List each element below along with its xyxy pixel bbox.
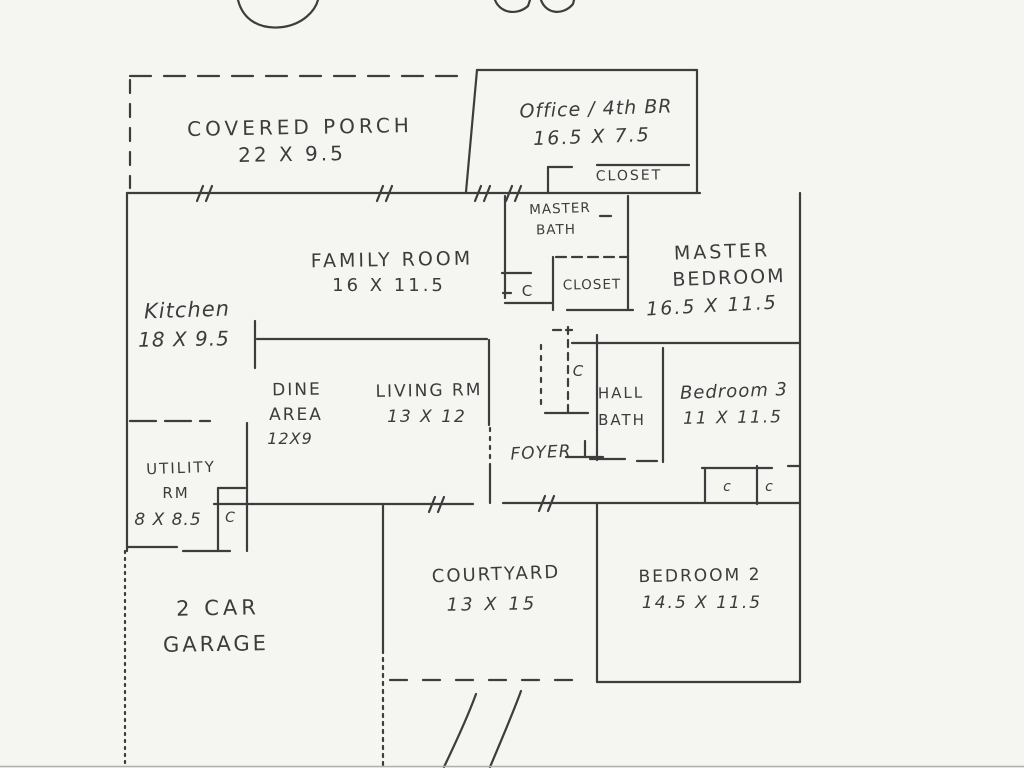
label-family-room-dims: 16 X 11.5 <box>332 277 446 295</box>
label-garage-line2: GARAGE <box>163 633 269 656</box>
label-master-closet: CLOSET <box>563 278 622 293</box>
floor-plan-drawing <box>0 0 1024 768</box>
walkway-right-edge <box>490 691 521 767</box>
label-hall-bath-line1: HALL <box>598 386 645 402</box>
label-dine-dims: 12X9 <box>267 431 313 447</box>
label-dine-line1: DINE <box>272 382 322 400</box>
label-living-room-dims: 13 X 12 <box>387 409 467 426</box>
label-covered-porch-dims: 22 X 9.5 <box>238 143 346 165</box>
label-courtyard: COURTYARD <box>432 564 561 586</box>
label-hall-bath-line2: BATH <box>598 413 646 428</box>
label-kitchen-dims: 18 X 9.5 <box>138 328 230 350</box>
label-courtyard-dims: 13 X 15 <box>447 595 538 615</box>
label-dine-line2: AREA <box>269 407 323 424</box>
label-bedroom2: BEDROOM 2 <box>638 567 761 586</box>
label-office-dims: 16.5 X 7.5 <box>533 126 651 149</box>
label-office: Office / 4th BR <box>519 97 673 121</box>
label-family-room: FAMILY ROOM <box>311 250 474 272</box>
closet-marker-bedroom-c2: c <box>765 480 773 494</box>
label-kitchen: Kitchen <box>144 299 231 323</box>
label-master-bath-line2: BATH <box>536 224 576 238</box>
label-utility-line1: UTILITY <box>146 460 216 477</box>
label-living-room: LIVING RM <box>375 382 482 401</box>
label-foyer: FOYER <box>510 443 572 463</box>
closet-marker-utility: C <box>225 511 235 525</box>
label-bedroom2-dims: 14.5 X 11.5 <box>642 595 762 612</box>
office-left-wall <box>466 70 477 192</box>
label-office-closet: CLOSET <box>596 168 663 183</box>
label-covered-porch: COVERED PORCH <box>187 115 413 139</box>
label-master-bedroom-line2: BEDROOM <box>672 267 786 290</box>
closet-marker-master-bath: C <box>522 284 532 299</box>
top-scribble-large <box>238 0 318 28</box>
top-scribble-small-1 <box>495 0 530 12</box>
label-bedroom3: Bedroom 3 <box>680 381 789 403</box>
label-utility-line2: RM <box>162 486 189 501</box>
label-master-bath-line1: MASTER <box>529 202 591 218</box>
top-scribble-small-2 <box>541 0 574 12</box>
label-bedroom3-dims: 11 X 11.5 <box>683 409 783 428</box>
label-utility-dims: 8 X 8.5 <box>134 512 201 529</box>
label-master-bedroom-line1: MASTER <box>674 241 771 263</box>
closet-marker-bedroom-c1: c <box>723 480 731 494</box>
walkway-left-edge <box>444 694 476 767</box>
closet-marker-hall: C <box>573 364 583 379</box>
label-garage-line1: 2 CAR <box>176 597 260 619</box>
scanned-floor-plan-page: COVERED PORCH 22 X 9.5 Office / 4th BR 1… <box>0 0 1024 768</box>
